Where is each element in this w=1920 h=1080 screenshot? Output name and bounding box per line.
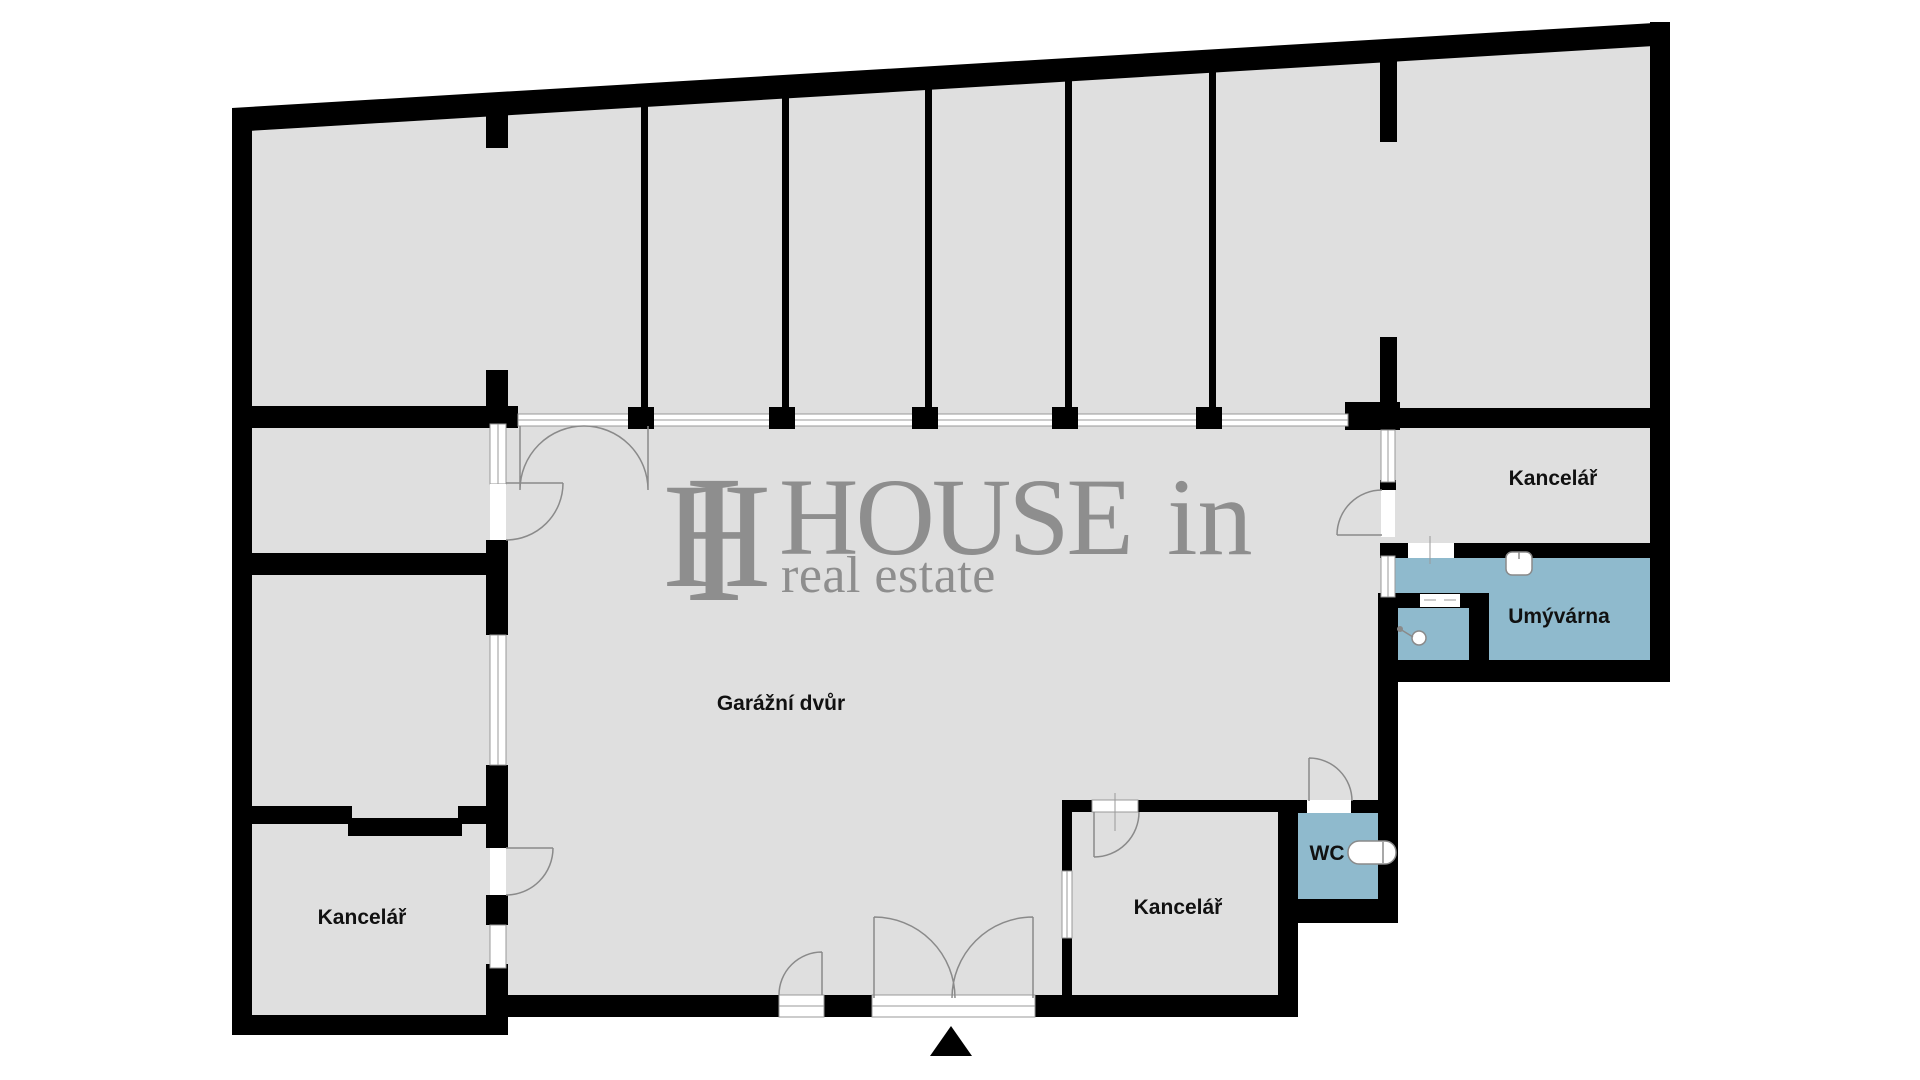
wall-bottom-step bbox=[486, 964, 508, 1035]
wall-office-br-left-b bbox=[1062, 938, 1072, 997]
door-opening-wc bbox=[1307, 800, 1351, 813]
outer-wall-washroom-bottom bbox=[1378, 660, 1670, 682]
logo-tagline: real estate bbox=[781, 547, 996, 604]
door-opening-room2 bbox=[490, 484, 506, 540]
wall-office-br-right bbox=[1278, 810, 1298, 1017]
floor-plan-page: Garážní dvůr Kancelář Umývárna WC Kancel… bbox=[0, 0, 1920, 1080]
floor-plan: Garážní dvůr Kancelář Umývárna WC Kancel… bbox=[0, 0, 1920, 1080]
window-office-bl bbox=[490, 925, 506, 968]
logo-brand-suffix: in bbox=[1167, 456, 1253, 578]
wall-junction-block bbox=[1345, 402, 1400, 430]
wall-left-c2 bbox=[348, 818, 462, 836]
divider-block-5 bbox=[1196, 407, 1222, 429]
stall-divider-1 bbox=[641, 103, 648, 415]
entrance-marker-icon bbox=[930, 1026, 972, 1056]
door-opening-office-bl bbox=[490, 848, 506, 895]
toilet-icon-wc bbox=[1348, 841, 1396, 864]
outer-wall-right-mid bbox=[1378, 593, 1398, 923]
stall-divider-2 bbox=[782, 94, 789, 415]
wall-stall6-right-top bbox=[1380, 56, 1397, 142]
stall-divider-5 bbox=[1209, 67, 1216, 415]
label-garage-yard: Garážní dvůr bbox=[717, 692, 845, 715]
toilet-icon-washroom bbox=[1506, 552, 1532, 575]
label-washroom: Umývárna bbox=[1508, 605, 1610, 628]
wall-left-b bbox=[232, 553, 508, 575]
door-opening-yard-right bbox=[1381, 490, 1395, 537]
stall-divider-3 bbox=[925, 85, 932, 415]
wall-sinkroom-right bbox=[1469, 593, 1489, 662]
divider-block-1 bbox=[628, 407, 654, 429]
wall-leftcol-stub-top bbox=[486, 110, 508, 148]
door-opening-washroom bbox=[1408, 543, 1454, 558]
wall-office-br-left-a bbox=[1062, 800, 1072, 871]
wall-office-tr-top bbox=[1397, 408, 1650, 428]
outer-wall-right bbox=[1650, 22, 1670, 682]
label-office-top-right: Kancelář bbox=[1509, 467, 1599, 490]
stall-divider-4 bbox=[1065, 76, 1072, 415]
divider-block-3 bbox=[912, 407, 938, 429]
divider-block-2 bbox=[769, 407, 795, 429]
divider-block-4 bbox=[1052, 407, 1078, 429]
logo-monogram-h: H bbox=[663, 453, 771, 619]
label-wc: WC bbox=[1310, 842, 1345, 865]
outer-wall-bottom-left bbox=[232, 1015, 508, 1035]
wall-leftcol-seg4 bbox=[486, 895, 508, 925]
wall-leftcol-seg2 bbox=[486, 540, 508, 635]
wall-left-a bbox=[232, 406, 518, 428]
wall-leftcol-seg1 bbox=[486, 370, 508, 428]
wall-left-c1 bbox=[252, 806, 352, 824]
label-office-bottom-right: Kancelář bbox=[1134, 896, 1224, 919]
label-office-bottom-left: Kancelář bbox=[318, 906, 408, 929]
wall-leftcol-seg3 bbox=[486, 765, 508, 848]
